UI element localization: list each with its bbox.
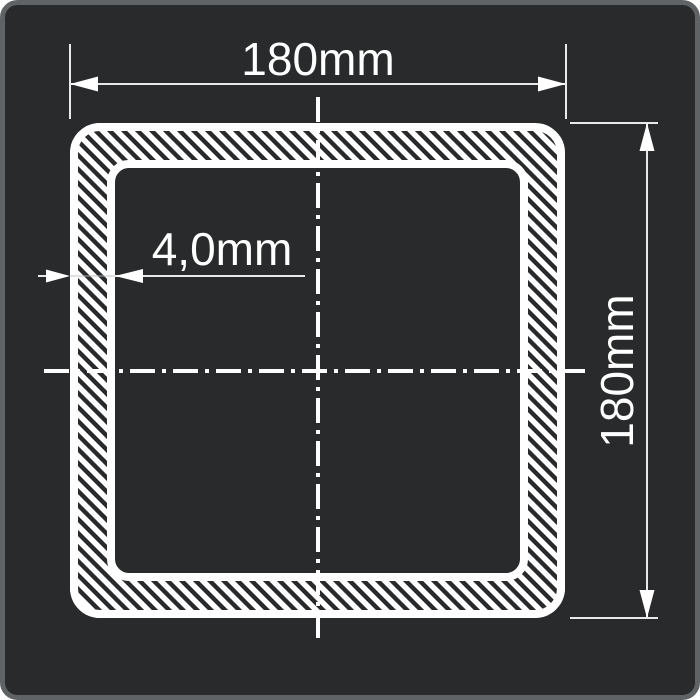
width-dimension-label: 180mm — [241, 33, 394, 85]
technical-drawing-canvas: 180mm 180mm 4,0mm — [0, 0, 700, 700]
height-dimension-label: 180mm — [591, 294, 643, 447]
square-tube-cross-section-drawing: 180mm 180mm 4,0mm — [0, 0, 700, 700]
wall-thickness-label: 4,0mm — [152, 223, 293, 275]
